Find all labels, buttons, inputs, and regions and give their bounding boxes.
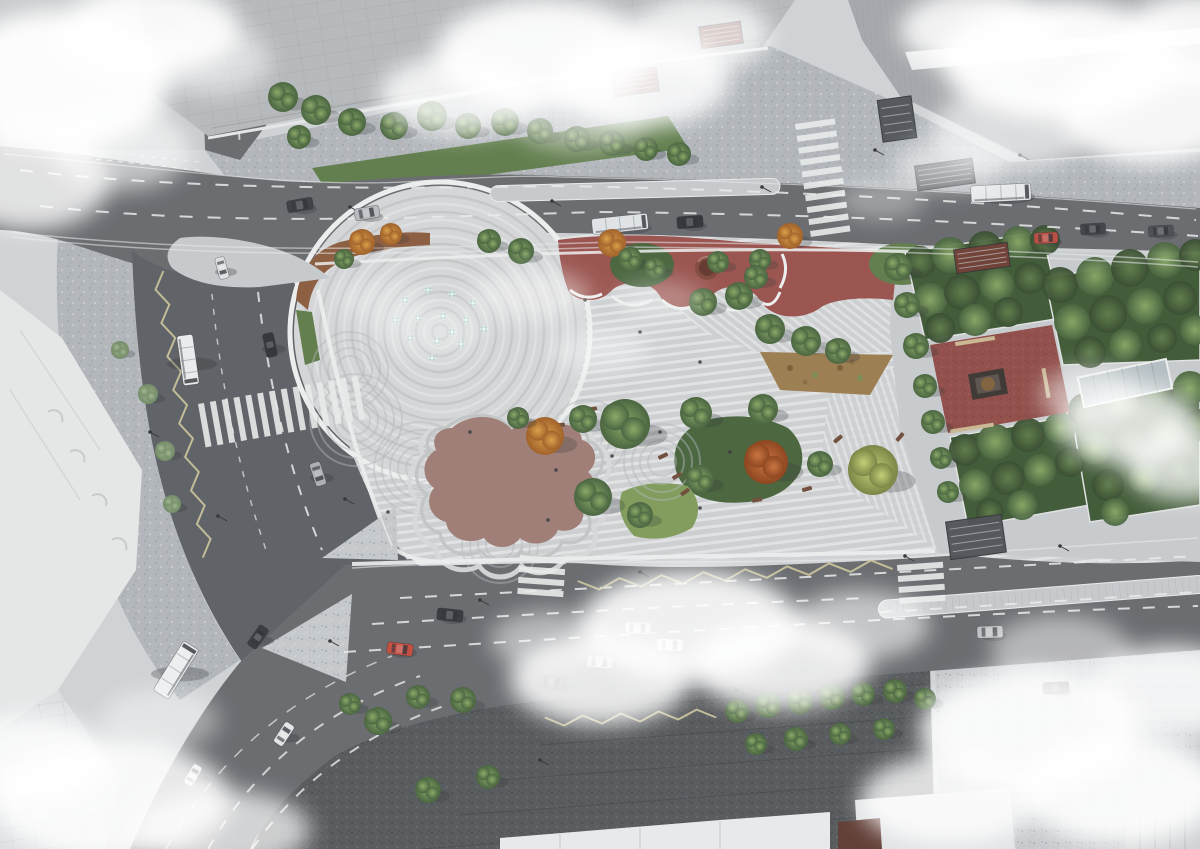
aerial-render: Aerial architectural rendering of an urb… [0,0,1200,849]
haze-overlay [0,0,1200,849]
scene: Aerial architectural rendering of an urb… [0,0,1200,849]
